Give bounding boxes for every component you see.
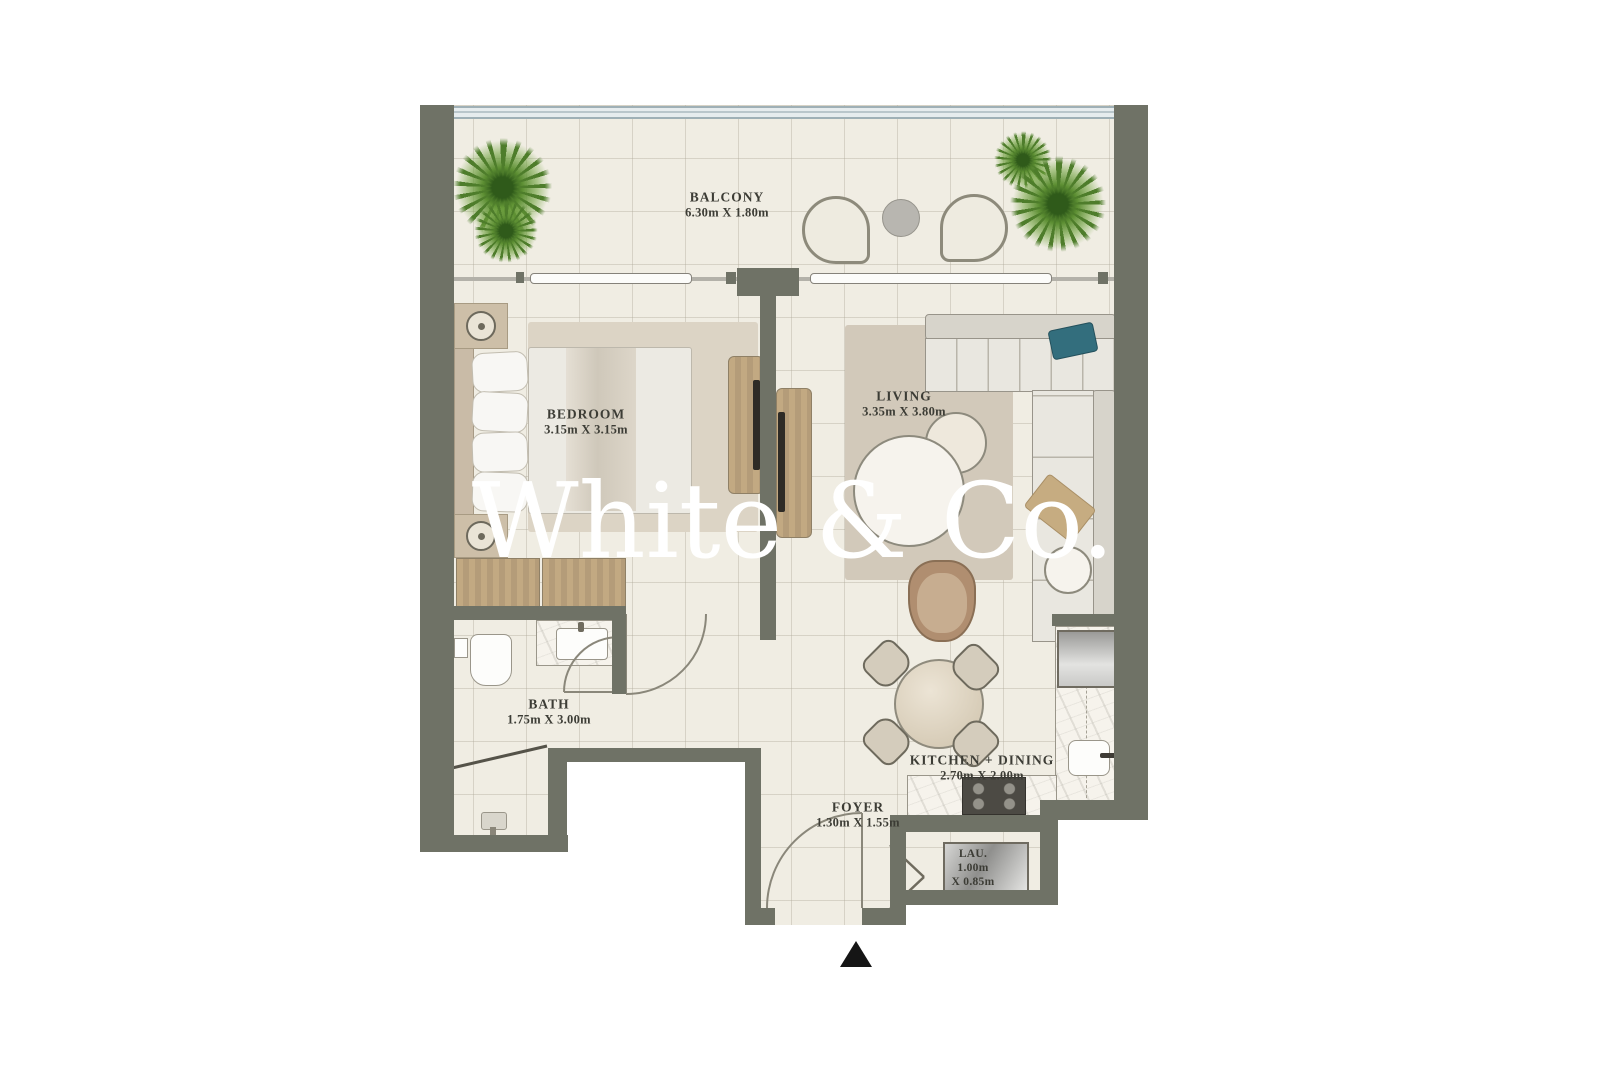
wall-segment [737, 268, 799, 296]
wall-segment [548, 748, 567, 852]
balcony-label: BALCONY 6.30m X 1.80m [685, 190, 769, 221]
door-track-cap [516, 272, 524, 283]
wall-segment [548, 748, 760, 762]
floorplan-canvas: BALCONY 6.30m X 1.80m BEDROOM 3.15m X 3.… [0, 0, 1600, 1066]
wall-segment [890, 890, 1058, 905]
wall-segment [760, 274, 776, 640]
sliding-door-panel [810, 273, 1052, 284]
room-dimensions: 3.15m X 3.15m [544, 423, 628, 438]
wall-segment [745, 748, 761, 925]
wall-segment [454, 606, 626, 620]
plant-icon [1012, 158, 1104, 250]
room-dimensions: 3.35m X 3.80m [862, 405, 946, 420]
room-name: BEDROOM [544, 407, 628, 423]
door-track-cap [1098, 272, 1108, 284]
wall-segment [890, 815, 1058, 832]
watermark: White & Co. [472, 460, 1115, 582]
foyer-label: FOYER 1.30m X 1.55m [816, 800, 900, 831]
wall-segment [420, 105, 454, 852]
room-dimensions: 6.30m X 1.80m [685, 206, 769, 221]
room-dimensions: 1.30m X 1.55m [816, 816, 900, 831]
sliding-door-panel [530, 273, 692, 284]
room-dimensions: 1.75m X 3.00m [507, 713, 591, 728]
room-dimensions: 1.00m [952, 861, 995, 875]
wall-segment [612, 606, 626, 694]
room-name: BATH [507, 697, 591, 713]
wall-segment [1052, 614, 1114, 626]
laundry-label: LAU. 1.00m X 0.85m [952, 847, 995, 889]
wall-segment [745, 908, 775, 925]
room-name: LIVING [862, 389, 946, 405]
room-name: BALCONY [685, 190, 769, 206]
wall-segment [1114, 105, 1148, 820]
room-name: KITCHEN + DINING [910, 753, 1054, 769]
room-dimensions: X 0.85m [952, 875, 995, 889]
room-name: FOYER [816, 800, 900, 816]
door-track-cap [726, 272, 736, 284]
kitchen-dining-label: KITCHEN + DINING 2.70m X 2.00m [910, 753, 1054, 784]
balcony-railing [454, 106, 1114, 119]
entrance-arrow-icon [840, 941, 872, 967]
bath-label: BATH 1.75m X 3.00m [507, 697, 591, 728]
wall-segment [420, 835, 568, 852]
plant-icon [475, 200, 537, 262]
living-label: LIVING 3.35m X 3.80m [862, 389, 946, 420]
bedroom-label: BEDROOM 3.15m X 3.15m [544, 407, 628, 438]
room-name: LAU. [952, 847, 995, 861]
room-dimensions: 2.70m X 2.00m [910, 769, 1054, 784]
